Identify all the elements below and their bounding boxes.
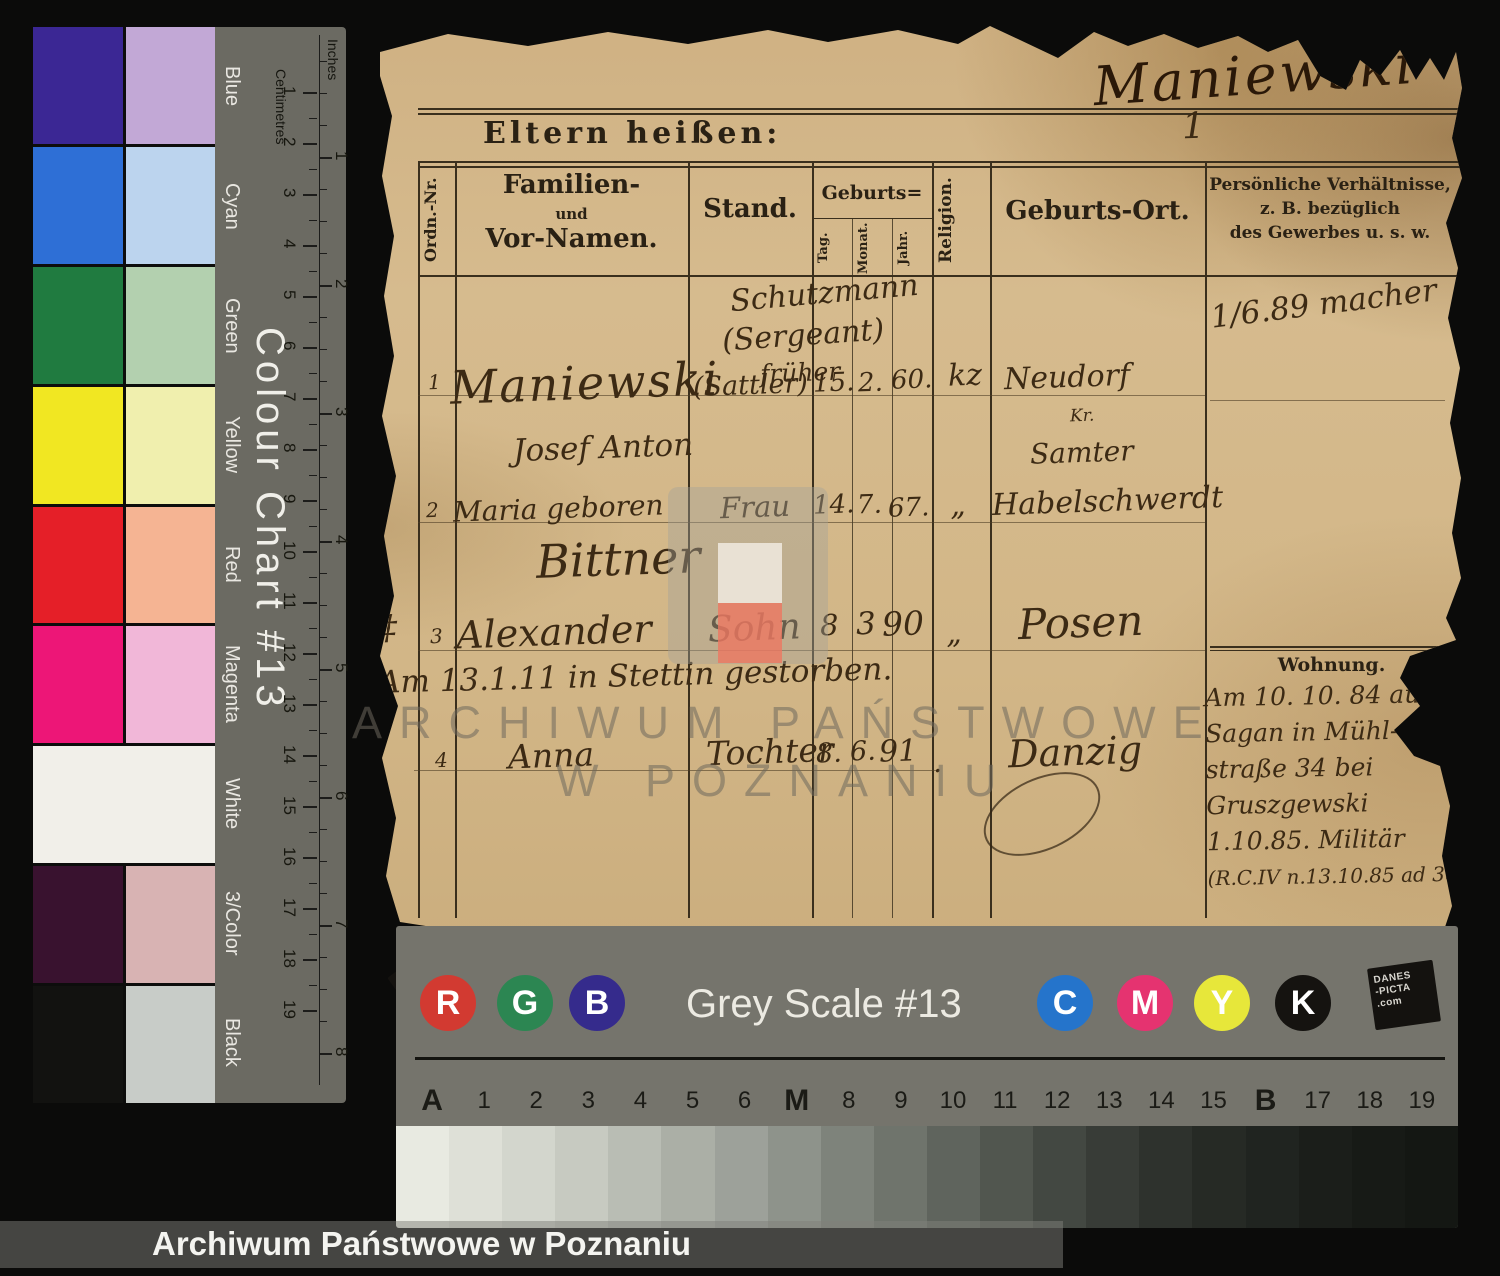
inch-number: 6 [329, 770, 351, 822]
watermark-text-line1: ARCHIWUM PAŃSTWOWE [352, 697, 1220, 749]
cm-tick [303, 398, 317, 400]
cm-number: 5 [277, 269, 299, 321]
cm-tick [303, 245, 317, 247]
ruler: Centimetres Inches 123456789101112131415… [215, 27, 346, 1103]
cm-tick [303, 602, 317, 604]
row-number: 4 [435, 748, 449, 772]
handwritten-religion: „ [949, 488, 966, 524]
column-header-stand: Stand. [688, 194, 812, 224]
handwritten-mark: 1 [1181, 106, 1205, 148]
row-number: 2 [426, 498, 440, 522]
cm-number: 6 [277, 320, 299, 372]
grey-scale-label: A [406, 1080, 458, 1122]
grey-patch-13 [1086, 1126, 1139, 1228]
column-line [892, 218, 893, 918]
color-swatch-tint [126, 866, 216, 983]
handwritten-day: 15. [812, 367, 854, 398]
ruler-divider-line [319, 35, 320, 1085]
cm-number: 13 [277, 677, 299, 729]
inch-quarter-tick [320, 701, 327, 702]
color-row-blue [33, 27, 215, 144]
color-swatch [33, 746, 215, 863]
geburts-sub-rule [812, 218, 932, 219]
grey-scale-card: RGB Grey Scale #13 CMYK DANES -PICTA .co… [396, 926, 1458, 1228]
inch-quarter-tick [320, 893, 327, 894]
cm-tick [303, 653, 317, 655]
grey-patch-8 [821, 1126, 874, 1228]
grey-scale-label: 17 [1292, 1080, 1344, 1122]
grey-patch-10 [927, 1126, 980, 1228]
inch-number: 1 [329, 130, 351, 182]
cm-number: 12 [277, 626, 299, 678]
cm-half-tick [309, 883, 317, 884]
watermark-flag-white [718, 543, 782, 603]
color-swatch-tint [126, 267, 216, 384]
grey-scale-label: 10 [927, 1080, 979, 1122]
column-header-ordnr: Ordn.-Nr. [421, 168, 453, 272]
inch-number: 5 [329, 642, 351, 694]
cm-number: 17 [277, 881, 299, 933]
color-swatch-solid [33, 507, 123, 624]
grey-scale-label: 6 [719, 1080, 771, 1122]
handwritten-month: 7. [856, 490, 882, 521]
inch-quarter-tick [320, 957, 327, 958]
separator-line [415, 1057, 1445, 1060]
inch-quarter-tick [320, 861, 327, 862]
grey-patch-5 [661, 1126, 714, 1228]
handwritten-birthplace: Samter [1029, 434, 1134, 471]
column-header-ort: Geburts-Ort. [990, 196, 1205, 226]
inch-quarter-tick [320, 381, 327, 382]
grey-scale-label: 11 [979, 1080, 1031, 1122]
handwritten-year: 60. [890, 364, 932, 395]
color-swatch-tint [126, 147, 216, 264]
archival-scan-stage: BlueCyanGreenYellowRedMagentaWhite3/Colo… [0, 0, 1500, 1276]
wohnung-header: Wohnung. [1210, 654, 1453, 676]
wohnung-line-1: Sagan in Mühl- [1205, 712, 1462, 752]
grey-patch-0 [396, 1126, 449, 1228]
cm-tick [303, 296, 317, 298]
rule [418, 161, 1462, 163]
wohnung-line-0: Am 10. 10. 84 aus [1204, 676, 1461, 716]
handwritten-birthplace: Posen [1017, 596, 1144, 649]
inch-quarter-tick [320, 829, 327, 830]
color-row-red [33, 507, 215, 624]
color-swatch-solid [33, 267, 123, 384]
inches-label: Inches [325, 39, 341, 80]
inch-quarter-tick [320, 253, 327, 254]
cm-number: 18 [277, 932, 299, 984]
grey-patch-1 [449, 1126, 502, 1228]
wohnung-line-2: straße 34 bei [1205, 748, 1462, 788]
cm-number: 8 [277, 422, 299, 474]
watermark-text-line2: W POZNANIU [556, 755, 1014, 807]
handwritten-name: Alexander [455, 607, 652, 658]
grey-scale-label: 2 [510, 1080, 562, 1122]
cm-number: 1 [277, 65, 299, 117]
cm-half-tick [309, 985, 317, 986]
grey-scale-label: 19 [1396, 1080, 1448, 1122]
inch-quarter-tick [320, 573, 327, 574]
grey-patch-11 [980, 1126, 1033, 1228]
cm-half-tick [309, 169, 317, 170]
cm-number: 4 [277, 218, 299, 270]
inch-quarter-tick [320, 61, 327, 62]
column-header-pers: Persönliche Verhältnisse, [1205, 175, 1455, 195]
cm-tick [303, 347, 317, 349]
caption-band: Archiwum Państwowe w Poznaniu [0, 1221, 1063, 1268]
grey-patch-3 [555, 1126, 608, 1228]
handwritten-religion: kz [947, 357, 982, 393]
handwritten-birthplace: Neudorf [1003, 358, 1130, 397]
column-line [418, 163, 420, 918]
column-header-jahr: Jahr. [896, 222, 928, 274]
rule [418, 113, 1462, 115]
grey-scale-label: 9 [875, 1080, 927, 1122]
wohnung-rule [1210, 646, 1453, 648]
cm-tick [303, 755, 317, 757]
grey-patch-14 [1139, 1126, 1192, 1228]
handwritten-surname-top: Maniewski [1091, 33, 1417, 118]
cm-number: 7 [277, 371, 299, 423]
cm-tick [303, 857, 317, 859]
grey-scale-label: 8 [823, 1080, 875, 1122]
color-swatch-solid [33, 626, 123, 743]
cm-number: 9 [277, 473, 299, 525]
cm-half-tick [309, 781, 317, 782]
cm-number: 10 [277, 524, 299, 576]
column-header-pers: z. B. bezüglich [1205, 199, 1455, 219]
cm-half-tick [309, 424, 317, 425]
cm-half-tick [309, 730, 317, 731]
cm-half-tick [309, 271, 317, 272]
inch-quarter-tick [320, 509, 327, 510]
dot-R: R [420, 975, 476, 1031]
cm-half-tick [309, 832, 317, 833]
column-line [455, 163, 457, 918]
inch-number: 3 [329, 386, 351, 438]
cm-tick [303, 500, 317, 502]
handwritten-month: 3 [855, 606, 876, 643]
inch-quarter-tick [320, 189, 327, 190]
handwritten-pers-note: 1/6.89 macher [1209, 272, 1439, 335]
cm-half-tick [309, 526, 317, 527]
rule [418, 108, 1462, 110]
grey-scale-title: Grey Scale #13 [686, 982, 1016, 1027]
cm-number: 3 [277, 167, 299, 219]
column-header-tag: Tag. [816, 222, 848, 274]
column-header-geburts: Geburts= [812, 182, 932, 204]
color-row-white [33, 746, 215, 863]
row-rule [1210, 400, 1445, 401]
cm-tick [303, 143, 317, 145]
cm-tick [303, 959, 317, 961]
cm-half-tick [309, 118, 317, 119]
inch-quarter-tick [320, 125, 327, 126]
inch-quarter-tick [320, 221, 327, 222]
inch-quarter-tick [320, 445, 327, 446]
cm-tick [303, 551, 317, 553]
column-header-religion: Religion. [936, 166, 988, 274]
color-row-magenta [33, 626, 215, 743]
inch-quarter-tick [320, 349, 327, 350]
grey-scale-label: 3 [562, 1080, 614, 1122]
cm-half-tick [309, 679, 317, 680]
form-title: Eltern heißen: [483, 116, 781, 151]
column-header-name: und [455, 205, 688, 223]
handwritten-year: 90 [881, 603, 924, 643]
cm-half-tick [309, 322, 317, 323]
color-swatch-grid [33, 27, 215, 1103]
grey-scale-label: 15 [1187, 1080, 1239, 1122]
danespicta-logo: DANES -PICTA .com [1367, 960, 1441, 1031]
grey-patch-4 [608, 1126, 661, 1228]
grey-scale-patches [396, 1126, 1458, 1228]
dot-C: C [1037, 975, 1093, 1031]
cm-half-tick [309, 577, 317, 578]
color-swatch-tint [126, 986, 216, 1103]
handwritten-year: 67. [887, 492, 929, 523]
inch-quarter-tick [320, 637, 327, 638]
row-number: 3 [430, 624, 444, 648]
color-swatch-tint [126, 507, 216, 624]
color-chart-card: BlueCyanGreenYellowRedMagentaWhite3/Colo… [33, 27, 346, 1103]
inch-number: 2 [329, 258, 351, 310]
inch-quarter-tick [320, 317, 327, 318]
header-bottom-rule [418, 275, 1462, 277]
grey-scale-label: 4 [614, 1080, 666, 1122]
wohnung-line-4: 1.10.85. Militär [1207, 820, 1464, 860]
inch-quarter-tick [320, 477, 327, 478]
color-row-cyan [33, 147, 215, 264]
cm-tick [303, 449, 317, 451]
cm-number: 16 [277, 830, 299, 882]
cm-number: 15 [277, 779, 299, 831]
death-cross-mark: ‡ [379, 608, 397, 649]
cm-half-tick [309, 373, 317, 374]
inch-number: 8 [329, 1026, 351, 1078]
inch-quarter-tick [320, 1021, 327, 1022]
dot-B: B [569, 975, 625, 1031]
inch-quarter-tick [320, 93, 327, 94]
watermark-flag-red [718, 603, 782, 663]
grey-patch-19 [1405, 1126, 1458, 1228]
handwritten-religion: „ [945, 616, 962, 652]
grey-scale-labels: A123456M89101112131415B171819 [406, 1080, 1448, 1122]
handwritten-name: Maniewski [449, 351, 720, 414]
grey-patch-15 [1192, 1126, 1245, 1228]
grey-patch-2 [502, 1126, 555, 1228]
handwritten-stand: (Sergeant) [721, 312, 885, 358]
color-swatch-solid [33, 27, 123, 144]
dot-K: K [1275, 975, 1331, 1031]
color-swatch-tint [126, 27, 216, 144]
grey-patch-18 [1352, 1126, 1405, 1228]
grey-scale-label: 18 [1344, 1080, 1396, 1122]
cm-half-tick [309, 934, 317, 935]
color-row-black [33, 986, 215, 1103]
dot-M: M [1117, 975, 1173, 1031]
cm-number: 19 [277, 983, 299, 1035]
grey-patch-7 [768, 1126, 821, 1228]
grey-scale-label: 5 [666, 1080, 718, 1122]
cm-number: 2 [277, 116, 299, 168]
grey-patch-9 [874, 1126, 927, 1228]
cm-number: 14 [277, 728, 299, 780]
handwritten-stand: (Sattler) [692, 368, 808, 403]
color-swatch-solid [33, 986, 123, 1103]
cm-number: 11 [277, 575, 299, 627]
inch-number: 4 [329, 514, 351, 566]
archive-caption: Archiwum Państwowe w Poznaniu [152, 1225, 691, 1263]
inch-quarter-tick [320, 989, 327, 990]
row-number: 1 [428, 370, 442, 394]
grey-patch-17 [1299, 1126, 1352, 1228]
cm-tick [303, 908, 317, 910]
inch-quarter-tick [320, 765, 327, 766]
grey-patch-16 [1246, 1126, 1299, 1228]
cm-half-tick [309, 628, 317, 629]
grey-scale-label: 1 [458, 1080, 510, 1122]
inch-quarter-tick [320, 733, 327, 734]
inch-number: 7 [329, 898, 351, 950]
color-row-yellow [33, 387, 215, 504]
column-header-pers: des Gewerbes u. s. w. [1205, 223, 1455, 243]
wohnung-line-5: (R.C.IV n.13.10.85 ad 3057/85 [1207, 856, 1464, 896]
color-swatch-solid [33, 866, 123, 983]
handwritten-birthplace: Habelschwerdt [991, 480, 1223, 523]
cm-tick [303, 704, 317, 706]
grey-scale-label: M [771, 1080, 823, 1122]
handwritten-month: 2. [857, 368, 883, 399]
handwritten-wohnung-notes: Am 10. 10. 84 ausSagan in Mühl-straße 34… [1204, 676, 1464, 896]
column-header-name: Familien- [455, 170, 688, 200]
cm-tick [303, 92, 317, 94]
column-header-name: Vor-Namen. [455, 224, 688, 254]
wohnung-rule [1210, 650, 1453, 651]
color-row-3color [33, 866, 215, 983]
color-row-green [33, 267, 215, 384]
cm-tick [303, 194, 317, 196]
grey-scale-label: 13 [1083, 1080, 1135, 1122]
grey-scale-label: 14 [1135, 1080, 1187, 1122]
grey-patch-12 [1033, 1126, 1086, 1228]
color-swatch-solid [33, 147, 123, 264]
grey-scale-label: 12 [1031, 1080, 1083, 1122]
grey-patch-6 [715, 1126, 768, 1228]
cm-half-tick [309, 220, 317, 221]
color-swatch-tint [126, 626, 216, 743]
wohnung-line-3: Gruszgewski [1206, 784, 1463, 824]
color-chart-strip: BlueCyanGreenYellowRedMagentaWhite3/Colo… [215, 27, 346, 1103]
cm-tick [303, 1010, 317, 1012]
cm-tick [303, 806, 317, 808]
handwritten-name: Josef Anton [512, 427, 693, 469]
handwritten-birthplace: Kr. [1070, 406, 1095, 427]
color-swatch-tint [126, 387, 216, 504]
column-header-monat: Monat. [856, 222, 888, 274]
color-swatch-solid [33, 387, 123, 504]
grey-scale-label: B [1240, 1080, 1292, 1122]
dot-Y: Y [1194, 975, 1250, 1031]
dot-G: G [497, 975, 553, 1031]
cm-half-tick [309, 475, 317, 476]
inch-quarter-tick [320, 605, 327, 606]
